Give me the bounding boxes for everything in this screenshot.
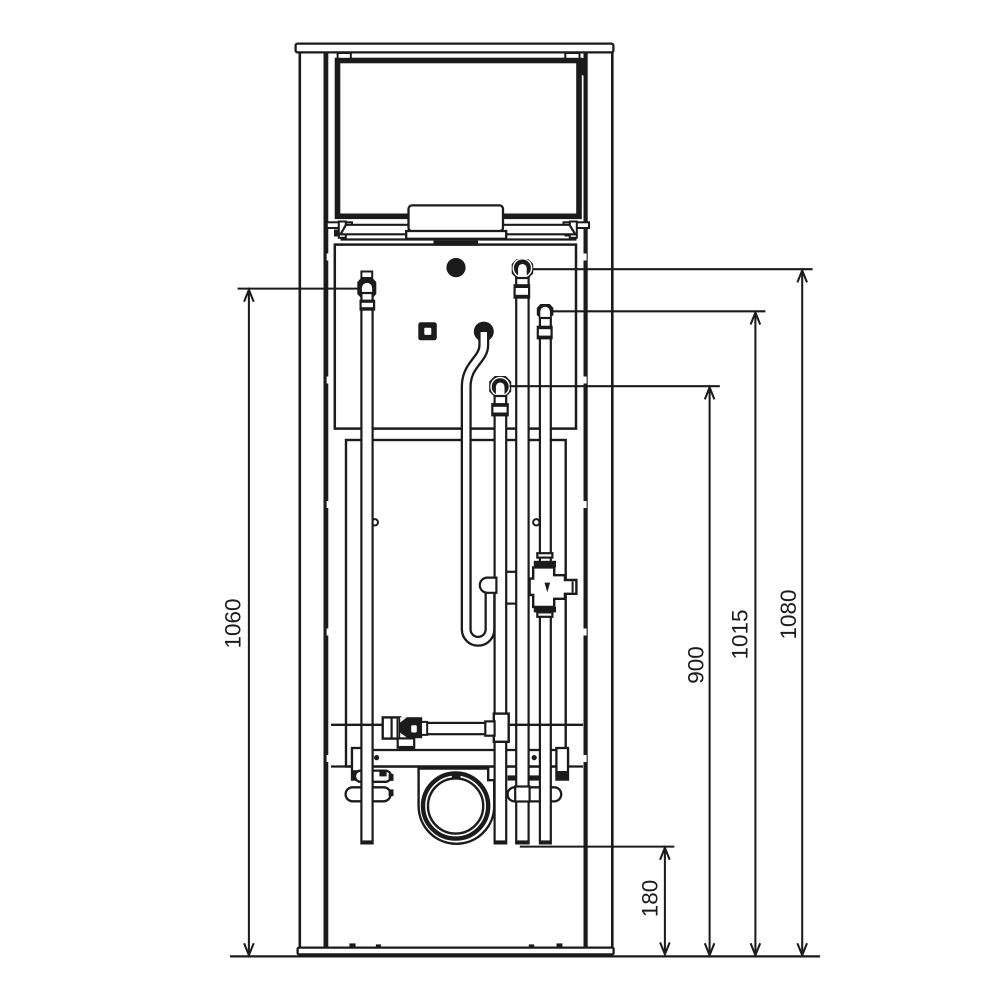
svg-text:1080: 1080 (776, 589, 801, 639)
svg-text:180: 180 (637, 880, 662, 918)
svg-text:900: 900 (683, 646, 708, 684)
svg-text:1060: 1060 (220, 598, 245, 648)
svg-text:1015: 1015 (727, 609, 752, 659)
